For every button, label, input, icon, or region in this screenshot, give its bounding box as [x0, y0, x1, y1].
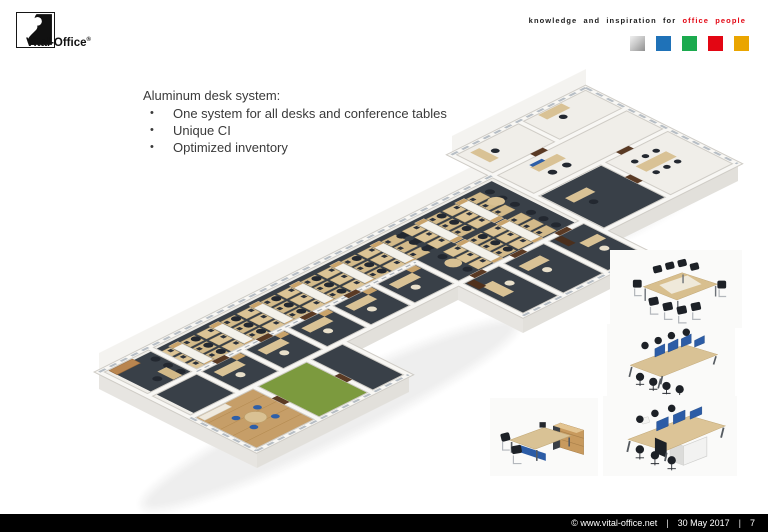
bench-desks-8-render — [607, 324, 735, 400]
bullet-text: Optimized inventory — [173, 139, 288, 156]
hall-floor — [308, 343, 405, 391]
storage-room — [109, 355, 182, 392]
green-room — [257, 361, 370, 417]
open-plan-floor — [111, 181, 576, 413]
right-meeting-floor — [603, 131, 734, 197]
executive-desk-render — [490, 398, 598, 476]
bullet-item: • Optimized inventory — [143, 139, 447, 156]
brand-square-gold — [734, 36, 749, 51]
tagline-prefix: knowledge and inspiration for — [529, 16, 677, 25]
bullet-text: Unique CI — [173, 122, 231, 139]
conference-table-render — [610, 250, 742, 328]
footer-date: 30 May 2017 — [678, 518, 730, 528]
footer-bar: © www.vital-office.net | 30 May 2017 | 7 — [0, 514, 768, 532]
brand-square-green — [682, 36, 697, 51]
brand-square-silver — [630, 36, 645, 51]
private-offices — [467, 101, 685, 210]
footer-separator: | — [666, 518, 668, 528]
glazed-offices — [207, 265, 441, 382]
bullet-item: • Unique CI — [143, 122, 447, 139]
tagline-highlight: office people — [682, 16, 746, 25]
bullet-marker: • — [150, 139, 160, 156]
presentation-slide: Vital-Office® knowledge and inspiration … — [0, 0, 768, 532]
brand-name: Vital-Office® — [26, 37, 91, 49]
brand-name-text: Vital-Office — [26, 37, 87, 49]
brand-square-blue — [656, 36, 671, 51]
brand-squares — [630, 36, 749, 51]
slide-title: Aluminum desk system: — [143, 87, 447, 104]
footer-page-number: 7 — [750, 518, 755, 528]
footer-copyright: © www.vital-office.net — [571, 518, 657, 528]
meeting-rooms — [467, 226, 619, 302]
right-offices-floor — [457, 90, 668, 195]
workstation-clusters — [146, 187, 568, 398]
bullet-marker: • — [150, 105, 160, 122]
bench-desks-6-render — [603, 396, 737, 476]
footer-separator: | — [739, 518, 741, 528]
dark-office-floor — [541, 165, 667, 228]
kitchen-area — [194, 387, 317, 449]
bullet-marker: • — [150, 122, 160, 139]
brand-square-red — [708, 36, 723, 51]
registered-mark: ® — [87, 37, 91, 43]
slide-text-block: Aluminum desk system: • One system for a… — [143, 87, 447, 156]
bullet-item: • One system for all desks and conferenc… — [143, 105, 447, 122]
header-tagline: knowledge and inspiration for office peo… — [529, 16, 746, 25]
bullet-text: One system for all desks and conference … — [173, 105, 447, 122]
